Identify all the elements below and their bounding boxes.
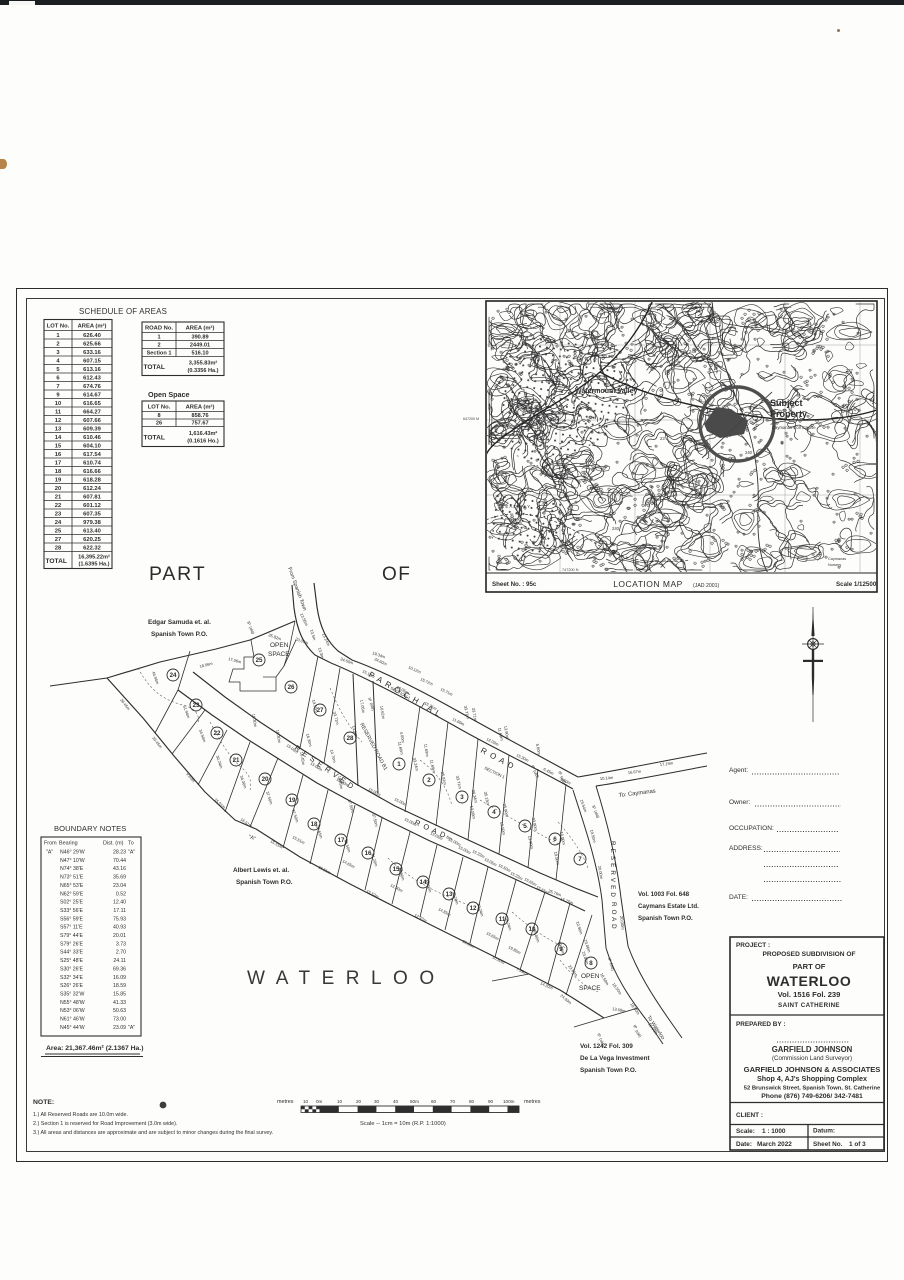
svg-text:Caymanas: Caymanas — [828, 557, 846, 561]
svg-text:13: 13 — [55, 426, 62, 432]
svg-text:35.13m: 35.13m — [483, 791, 491, 806]
svg-text:612.43: 612.43 — [83, 375, 102, 381]
svg-text:19: 19 — [55, 477, 62, 483]
svg-text:Watermount Valley: Watermount Valley — [575, 388, 637, 395]
svg-text:622.32: 622.32 — [83, 545, 101, 551]
svg-text:TOTAL: TOTAL — [144, 435, 165, 442]
svg-text:Datum:: Datum: — [813, 1128, 835, 1135]
svg-text:15.33m: 15.33m — [472, 848, 487, 859]
svg-text:390.89: 390.89 — [191, 335, 208, 341]
svg-text:613.16: 613.16 — [83, 367, 102, 373]
svg-text:S32° 34'E: S32° 34'E — [60, 975, 84, 981]
svg-text:IP: IP — [591, 805, 597, 811]
svg-text:(old): (old) — [248, 626, 256, 636]
svg-text:24: 24 — [55, 520, 62, 526]
svg-text:0m: 0m — [316, 1099, 323, 1104]
svg-text:40.93: 40.93 — [113, 925, 126, 931]
svg-text:3: 3 — [460, 794, 464, 801]
svg-text:2: 2 — [427, 777, 431, 784]
svg-text:From: From — [44, 841, 57, 847]
svg-text:SCHEDULE OF AREAS: SCHEDULE OF AREAS — [79, 307, 167, 316]
svg-text:7: 7 — [56, 384, 59, 390]
svg-text:101: 101 — [527, 488, 535, 493]
svg-text:10: 10 — [303, 1099, 309, 1104]
svg-text:858.76: 858.76 — [191, 413, 208, 419]
svg-text:12.03m: 12.03m — [486, 736, 501, 747]
svg-text:25: 25 — [256, 657, 263, 664]
svg-text:Caymans Estate Ltd.: Caymans Estate Ltd. — [638, 903, 699, 910]
svg-text:15.75m: 15.75m — [560, 896, 575, 905]
svg-text:17.05m: 17.05m — [359, 699, 366, 714]
svg-text:Vol. 1242 Fol. 309: Vol. 1242 Fol. 309 — [580, 1043, 633, 1050]
svg-text:Vol. 1516 Fol. 239: Vol. 1516 Fol. 239 — [778, 990, 841, 999]
svg-text:35.80m: 35.80m — [532, 929, 541, 944]
svg-text:AREA (m²): AREA (m²) — [186, 403, 215, 410]
svg-text:15.65m: 15.65m — [462, 938, 477, 949]
svg-text:IP: IP — [367, 697, 373, 702]
svg-text:10.70m: 10.70m — [329, 749, 337, 764]
svg-text:10.62m: 10.62m — [379, 705, 386, 720]
svg-text:34.60m: 34.60m — [340, 656, 355, 665]
svg-text:625.66: 625.66 — [83, 341, 102, 347]
svg-text:2: 2 — [157, 343, 160, 349]
svg-text:604.10: 604.10 — [83, 443, 101, 449]
svg-text:(0.3356 Ha.): (0.3356 Ha.) — [187, 368, 218, 374]
svg-text:16.30m: 16.30m — [305, 733, 313, 748]
svg-text:35.69: 35.69 — [113, 875, 126, 881]
svg-text:16.30m: 16.30m — [251, 713, 258, 728]
svg-text:metres: metres — [277, 1099, 294, 1105]
svg-text:609.39: 609.39 — [83, 426, 102, 432]
svg-text:23: 23 — [193, 702, 200, 709]
svg-text:NOTE:: NOTE: — [33, 1099, 54, 1106]
svg-text:612.24: 612.24 — [83, 486, 102, 492]
svg-text:S25° 48'E: S25° 48'E — [60, 958, 84, 964]
svg-text:24: 24 — [170, 672, 177, 679]
svg-text:601.12: 601.12 — [83, 503, 101, 509]
svg-text:616.66: 616.66 — [83, 469, 102, 475]
svg-text:24.11: 24.11 — [113, 958, 126, 964]
svg-text:90: 90 — [488, 1099, 494, 1104]
svg-text:IP: IP — [607, 957, 613, 962]
svg-text:SPACE: SPACE — [579, 985, 601, 992]
svg-text:19: 19 — [289, 797, 296, 804]
svg-text:1: 1 — [157, 335, 160, 341]
svg-text:70: 70 — [450, 1099, 456, 1104]
svg-text:23: 23 — [55, 511, 62, 517]
svg-text:LOCATION MAP: LOCATION MAP — [613, 579, 683, 589]
svg-text:614.67: 614.67 — [83, 392, 101, 398]
svg-text:43.16: 43.16 — [113, 866, 126, 872]
svg-text:10.14m: 10.14m — [600, 775, 614, 781]
svg-text:Date:: Date: — [736, 1141, 752, 1148]
svg-text:33.71m: 33.71m — [332, 711, 340, 726]
svg-text:10.12m: 10.12m — [408, 664, 423, 674]
svg-text:11.69m: 11.69m — [429, 759, 437, 773]
svg-text:100m: 100m — [503, 1099, 515, 1104]
svg-text:Agent:: Agent: — [729, 767, 748, 774]
svg-text:RESERVED ROAD B1: RESERVED ROAD B1 — [358, 722, 388, 771]
svg-text:15.72m: 15.72m — [420, 676, 435, 686]
svg-text:T R E A D W A Y: T R E A D W A Y — [497, 504, 530, 509]
svg-text:N55° 48'W: N55° 48'W — [60, 1000, 85, 1006]
svg-text:Owner:: Owner: — [729, 799, 750, 806]
svg-text:41.33: 41.33 — [113, 1000, 126, 1006]
svg-text:30.80m: 30.80m — [557, 941, 566, 956]
svg-text:23.04: 23.04 — [113, 883, 126, 889]
svg-text:28: 28 — [55, 545, 62, 551]
svg-text:"A": "A" — [128, 850, 135, 856]
svg-text:245: 245 — [585, 458, 593, 463]
svg-text:747200 N: 747200 N — [562, 568, 579, 572]
svg-text:1.) All Reserved Roads are 10.: 1.) All Reserved Roads are 10.0m wide. — [33, 1112, 128, 1118]
svg-text:R O A D: R O A D — [610, 902, 617, 929]
svg-text:TOTAL: TOTAL — [46, 558, 67, 565]
svg-text:22: 22 — [55, 503, 61, 509]
svg-text:13.5m: 13.5m — [309, 629, 317, 642]
svg-text:S30° 26'E: S30° 26'E — [60, 966, 84, 972]
svg-text:607.81: 607.81 — [83, 494, 102, 500]
svg-text:11.60m: 11.60m — [397, 741, 405, 755]
svg-text:ROAD No.: ROAD No. — [145, 325, 173, 331]
svg-text:23.86m: 23.86m — [581, 951, 590, 966]
svg-text:16.09: 16.09 — [113, 975, 126, 981]
svg-text:GARFIELD JOHNSON & ASSOCIATES: GARFIELD JOHNSON & ASSOCIATES — [744, 1065, 881, 1074]
svg-text:3: 3 — [56, 350, 60, 356]
svg-text:647200 M: 647200 M — [463, 417, 479, 421]
svg-text:From Spanish Town: From Spanish Town — [286, 567, 307, 612]
svg-text:15.85: 15.85 — [113, 992, 126, 998]
svg-text:6: 6 — [56, 375, 60, 381]
svg-text:15: 15 — [55, 443, 62, 449]
svg-text:Spanish Town P.O.: Spanish Town P.O. — [151, 631, 208, 638]
svg-text:OPEN: OPEN — [581, 973, 600, 980]
svg-text:27: 27 — [55, 537, 61, 543]
svg-text:(0.1616 Ho.): (0.1616 Ho.) — [187, 439, 219, 445]
svg-text:19.50m: 19.50m — [311, 699, 319, 714]
svg-text:19.50m: 19.50m — [553, 851, 561, 866]
svg-text:P A R K: P A R K — [505, 517, 520, 522]
svg-text:23: 23 — [660, 436, 665, 441]
svg-text:Sheet No. : 95c: Sheet No. : 95c — [492, 581, 537, 588]
svg-text:12: 12 — [55, 418, 61, 424]
svg-text:12.40: 12.40 — [113, 900, 126, 906]
svg-text:664.27: 664.27 — [83, 409, 101, 415]
svg-text:13.69m: 13.69m — [612, 1006, 627, 1013]
svg-text:13.3m: 13.3m — [317, 647, 325, 660]
svg-text:16: 16 — [55, 452, 62, 458]
svg-text:26: 26 — [288, 684, 295, 691]
svg-text:20: 20 — [55, 486, 61, 492]
svg-text:TOTAL: TOTAL — [144, 364, 165, 371]
svg-text:20.01: 20.01 — [113, 933, 126, 939]
svg-text:15.51m: 15.51m — [213, 797, 227, 810]
svg-text:17.06m: 17.06m — [228, 656, 243, 664]
svg-text:3,355.83m²: 3,355.83m² — [189, 360, 218, 367]
svg-text:17.19m: 17.19m — [660, 760, 675, 767]
svg-text:20.00m: 20.00m — [619, 916, 625, 931]
svg-text:OF: OF — [382, 564, 411, 585]
svg-text:18.06m: 18.06m — [199, 661, 214, 669]
svg-text:To: To — [128, 841, 134, 847]
svg-text:Spanish Town P.O.: Spanish Town P.O. — [580, 1067, 637, 1074]
svg-text:15.00m: 15.00m — [368, 786, 383, 797]
svg-text:PREPARED BY :: PREPARED BY : — [736, 1021, 785, 1028]
svg-text:PROPOSED SUBDIVISION OF: PROPOSED SUBDIVISION OF — [762, 951, 855, 958]
svg-text:Open Space: Open Space — [148, 390, 190, 399]
svg-text:S44° 33'E: S44° 33'E — [60, 950, 84, 956]
svg-text:1 of 3: 1 of 3 — [849, 1141, 866, 1148]
svg-text:75.93: 75.93 — [113, 916, 126, 922]
svg-text:S02° 25'E: S02° 25'E — [60, 900, 84, 906]
svg-text:610.74: 610.74 — [83, 460, 102, 466]
svg-text:4: 4 — [56, 358, 60, 364]
svg-text:S33° 56'E: S33° 56'E — [60, 908, 84, 914]
svg-text:10.50m: 10.50m — [492, 954, 507, 965]
svg-text:Section 1: Section 1 — [147, 351, 172, 357]
svg-text:36.45m: 36.45m — [119, 698, 132, 712]
svg-text:Spanish Town P.O.: Spanish Town P.O. — [638, 915, 693, 922]
svg-text:S26° 26'E: S26° 26'E — [60, 983, 84, 989]
svg-text:SAINT CATHERINE: SAINT CATHERINE — [778, 1002, 840, 1009]
svg-text:18.59: 18.59 — [113, 983, 126, 989]
svg-text:1: 1 — [397, 761, 401, 768]
svg-text:13.56m: 13.56m — [299, 612, 309, 627]
svg-text:18: 18 — [55, 469, 62, 475]
svg-text:"A": "A" — [128, 1025, 135, 1031]
svg-text:15.51m: 15.51m — [270, 839, 285, 850]
svg-text:34.50m: 34.50m — [198, 729, 207, 744]
svg-text:PART: PART — [149, 563, 206, 585]
svg-text:613.40: 613.40 — [83, 528, 101, 534]
svg-text:607.66: 607.66 — [83, 418, 102, 424]
svg-text:37.50m: 37.50m — [265, 791, 274, 806]
svg-text:240: 240 — [612, 526, 620, 531]
svg-text:LOT No.: LOT No. — [47, 323, 70, 329]
svg-text:30.24m: 30.24m — [215, 755, 224, 770]
svg-text:Caymanas Golf Course: Caymanas Golf Course — [772, 425, 816, 430]
svg-text:516.10: 516.10 — [191, 351, 208, 357]
svg-text:0.52: 0.52 — [116, 891, 126, 897]
svg-text:3.73: 3.73 — [116, 941, 126, 947]
svg-text:17.11: 17.11 — [113, 908, 126, 914]
svg-text:10: 10 — [337, 1099, 343, 1104]
svg-text:50.63: 50.63 — [113, 1008, 126, 1014]
svg-text:15.65m: 15.65m — [486, 930, 501, 941]
svg-text:S56° 59'E: S56° 59'E — [60, 916, 84, 922]
svg-text:AREA (m²): AREA (m²) — [186, 324, 215, 331]
svg-text:1,616.43m²: 1,616.43m² — [189, 430, 218, 437]
svg-text:6: 6 — [553, 836, 557, 843]
svg-text:10: 10 — [55, 401, 61, 407]
svg-text:3.) All areas and distances ar: 3.) All areas and distances are approxim… — [33, 1130, 273, 1136]
svg-text:2: 2 — [56, 341, 59, 347]
svg-text:12: 12 — [470, 905, 477, 912]
svg-text:(1.6395 Ha.): (1.6395 Ha.) — [78, 562, 109, 568]
svg-text:617.54: 617.54 — [83, 452, 102, 458]
svg-text:28.23: 28.23 — [113, 850, 126, 856]
svg-text:13.24m: 13.24m — [321, 632, 331, 647]
svg-text:16.67m: 16.67m — [628, 769, 642, 775]
svg-text:52 Brunswick Street, Spanish T: 52 Brunswick Street, Spanish Town, St. C… — [744, 1086, 881, 1092]
svg-text:11: 11 — [55, 409, 62, 415]
svg-text:IP: IP — [246, 621, 252, 627]
svg-text:240: 240 — [745, 450, 753, 455]
svg-text:S57° 11'E: S57° 11'E — [60, 925, 83, 931]
svg-text:N45° 44'W: N45° 44'W — [60, 1025, 85, 1031]
svg-text:26: 26 — [156, 421, 162, 427]
svg-text:80: 80 — [469, 1099, 475, 1104]
svg-text:De La Vega Investment: De La Vega Investment — [580, 1055, 650, 1062]
svg-text:N73° 51'E: N73° 51'E — [60, 875, 84, 881]
svg-text:AREA (m²): AREA (m²) — [78, 322, 107, 329]
svg-text:To: Caymanas: To: Caymanas — [619, 789, 657, 799]
svg-text:2.) Section 1 is reserved for: 2.) Section 1 is reserved for Road Impro… — [33, 1121, 177, 1127]
svg-text:N74° 38'E: N74° 38'E — [60, 866, 84, 872]
svg-text:Property: Property — [770, 409, 807, 419]
svg-text:22: 22 — [214, 730, 221, 737]
svg-text:Dist. (m): Dist. (m) — [103, 841, 124, 847]
svg-text:SECTION 1: SECTION 1 — [484, 765, 507, 779]
svg-text:DATE:: DATE: — [729, 894, 748, 901]
svg-text:16,395.22m²: 16,395.22m² — [78, 554, 110, 561]
svg-text:50m: 50m — [410, 1099, 419, 1104]
svg-text:20: 20 — [356, 1099, 362, 1104]
svg-text:33.71m: 33.71m — [455, 775, 463, 790]
svg-text:(JAD 2001): (JAD 2001) — [693, 583, 720, 589]
svg-text:19.86m: 19.86m — [508, 944, 523, 955]
svg-text:(old): (old) — [593, 810, 601, 820]
svg-text:5: 5 — [56, 367, 60, 373]
svg-text:S79° 44'E: S79° 44'E — [60, 933, 84, 939]
svg-text:33.24m: 33.24m — [412, 757, 420, 772]
svg-text:Shop 4, AJ's Shopping Complex: Shop 4, AJ's Shopping Complex — [757, 1074, 867, 1083]
svg-text:Vol. 1003 Fol. 648: Vol. 1003 Fol. 648 — [638, 891, 690, 898]
svg-text:1: 1 — [56, 333, 60, 339]
svg-text:25: 25 — [55, 528, 62, 534]
svg-text:28: 28 — [347, 735, 354, 742]
svg-text:IP: IP — [596, 1032, 602, 1038]
svg-text:Sheet No.: Sheet No. — [813, 1141, 843, 1148]
svg-text:N61° 46'W: N61° 46'W — [60, 1017, 85, 1023]
svg-text:34.30m: 34.30m — [239, 775, 248, 790]
svg-text:35.45m: 35.45m — [151, 736, 164, 750]
svg-text:SPACE: SPACE — [268, 651, 290, 658]
svg-text:16.30m: 16.30m — [275, 729, 282, 744]
svg-text:N65° 53'E: N65° 53'E — [60, 883, 84, 889]
svg-text:30: 30 — [374, 1099, 380, 1104]
svg-text:metres: metres — [524, 1099, 541, 1105]
svg-text:37.50m: 37.50m — [291, 809, 300, 824]
svg-text:73.00: 73.00 — [113, 1017, 126, 1023]
svg-text:R E S E R V E D: R E S E R V E D — [609, 841, 616, 898]
svg-text:7: 7 — [578, 856, 582, 863]
svg-text:N53° 06'W: N53° 06'W — [60, 1008, 85, 1014]
svg-text:S35° 32'W: S35° 32'W — [60, 992, 85, 998]
svg-text:35.92m: 35.92m — [268, 632, 283, 641]
svg-text:Area: 21,367.46m² (2.1367 Ha.: Area: 21,367.46m² (2.1367 Ha.) — [46, 1045, 143, 1052]
svg-text:14.65m: 14.65m — [342, 858, 357, 869]
svg-text:247: 247 — [846, 368, 854, 373]
svg-text:616.65: 616.65 — [83, 401, 102, 407]
svg-text:20: 20 — [262, 776, 269, 783]
svg-text:Bearing: Bearing — [59, 841, 78, 847]
svg-text:37.50m: 37.50m — [347, 799, 355, 814]
svg-text:13.90m: 13.90m — [527, 835, 535, 850]
svg-text:757.67: 757.67 — [191, 421, 208, 427]
svg-text:69.36: 69.36 — [113, 966, 126, 972]
svg-text:(Commission Land Surveyor): (Commission Land Surveyor) — [772, 1055, 852, 1062]
svg-text:8: 8 — [589, 960, 593, 967]
svg-text:70.44: 70.44 — [113, 858, 126, 864]
svg-text:243: 243 — [689, 349, 697, 354]
svg-text:N46° 29'W: N46° 29'W — [60, 850, 85, 856]
svg-text:(old): (old) — [369, 702, 376, 712]
svg-text:(old): (old) — [634, 1029, 643, 1039]
svg-text:35.76m: 35.76m — [548, 888, 563, 897]
svg-text:CLIENT :: CLIENT : — [736, 1112, 763, 1119]
svg-text:WATERLOO: WATERLOO — [767, 973, 852, 989]
svg-text:979.38: 979.38 — [83, 520, 102, 526]
svg-text:1 : 1000: 1 : 1000 — [762, 1128, 786, 1135]
svg-text:18.50m: 18.50m — [629, 1002, 641, 1016]
svg-text:WATERLOO: WATERLOO — [247, 968, 446, 989]
svg-text:618.28: 618.28 — [83, 477, 102, 483]
svg-text:11.69m: 11.69m — [423, 743, 430, 757]
svg-text:6.45m: 6.45m — [543, 766, 556, 776]
svg-text:15.51m: 15.51m — [292, 834, 307, 845]
svg-text:46.96m: 46.96m — [151, 671, 160, 686]
svg-text:Spanish Town P.O.: Spanish Town P.O. — [236, 879, 293, 886]
svg-text:OPEN: OPEN — [270, 642, 289, 649]
svg-text:9: 9 — [56, 392, 60, 398]
svg-text:PROJECT :: PROJECT : — [736, 942, 770, 949]
svg-text:23.09: 23.09 — [113, 1025, 126, 1031]
svg-text:33.71m: 33.71m — [463, 705, 471, 720]
svg-text:60: 60 — [431, 1099, 437, 1104]
svg-text:607.35: 607.35 — [83, 511, 102, 517]
svg-text:610.46: 610.46 — [83, 435, 102, 441]
svg-text:620.25: 620.25 — [83, 537, 102, 543]
svg-text:Phone (876) 749-6206/ 342-7481: Phone (876) 749-6206/ 342-7481 — [761, 1093, 863, 1100]
svg-text:18.50m: 18.50m — [599, 972, 610, 987]
svg-text:8: 8 — [157, 413, 160, 419]
svg-text:BOUNDARY NOTES: BOUNDARY NOTES — [54, 824, 126, 833]
svg-text:5: 5 — [523, 823, 527, 830]
svg-text:10.90m: 10.90m — [575, 921, 584, 936]
svg-text:"A": "A" — [247, 834, 256, 842]
svg-text:9.60m: 9.60m — [185, 771, 196, 783]
svg-text:N47° 10'W: N47° 10'W — [60, 858, 85, 864]
svg-text:14: 14 — [55, 435, 62, 441]
svg-text:633.16: 633.16 — [83, 350, 102, 356]
svg-text:674.76: 674.76 — [83, 384, 102, 390]
svg-text:17: 17 — [55, 460, 61, 466]
svg-text:ADDRESS:: ADDRESS: — [729, 845, 763, 852]
svg-text:Edgar Samuda et. al.: Edgar Samuda et. al. — [148, 619, 211, 626]
svg-text:4: 4 — [492, 809, 496, 816]
svg-text:41.20m: 41.20m — [370, 853, 379, 868]
svg-text:21: 21 — [233, 757, 240, 764]
svg-text:19.54m: 19.54m — [579, 799, 588, 814]
svg-text:40: 40 — [393, 1099, 399, 1104]
svg-text:607.15: 607.15 — [83, 358, 102, 364]
svg-text:Scale -- 1cm = 10m (R.P. 1:100: Scale -- 1cm = 10m (R.P. 1:1000) — [360, 1121, 446, 1127]
svg-text:GARFIELD JOHNSON: GARFIELD JOHNSON — [772, 1045, 853, 1054]
svg-text:15.71m: 15.71m — [440, 686, 455, 697]
svg-text:21: 21 — [55, 494, 62, 500]
svg-text:626.40: 626.40 — [83, 333, 101, 339]
